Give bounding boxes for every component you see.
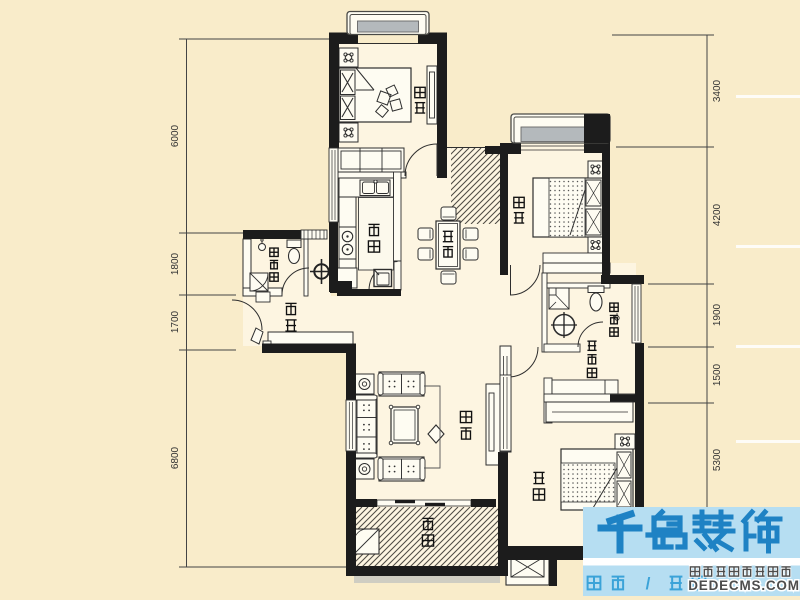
svg-text:DEDECMS.COM: DEDECMS.COM: [688, 578, 800, 593]
svg-text:6800: 6800: [170, 446, 181, 469]
svg-text:1700: 1700: [170, 310, 181, 333]
svg-text:1900: 1900: [712, 303, 723, 326]
svg-text:1500: 1500: [712, 363, 723, 386]
svg-text:5300: 5300: [712, 448, 723, 471]
svg-text:6000: 6000: [170, 124, 181, 147]
svg-text:4200: 4200: [712, 203, 723, 226]
svg-text:3400: 3400: [712, 79, 723, 102]
svg-text:/: /: [646, 574, 651, 593]
svg-text:1800: 1800: [170, 252, 181, 275]
